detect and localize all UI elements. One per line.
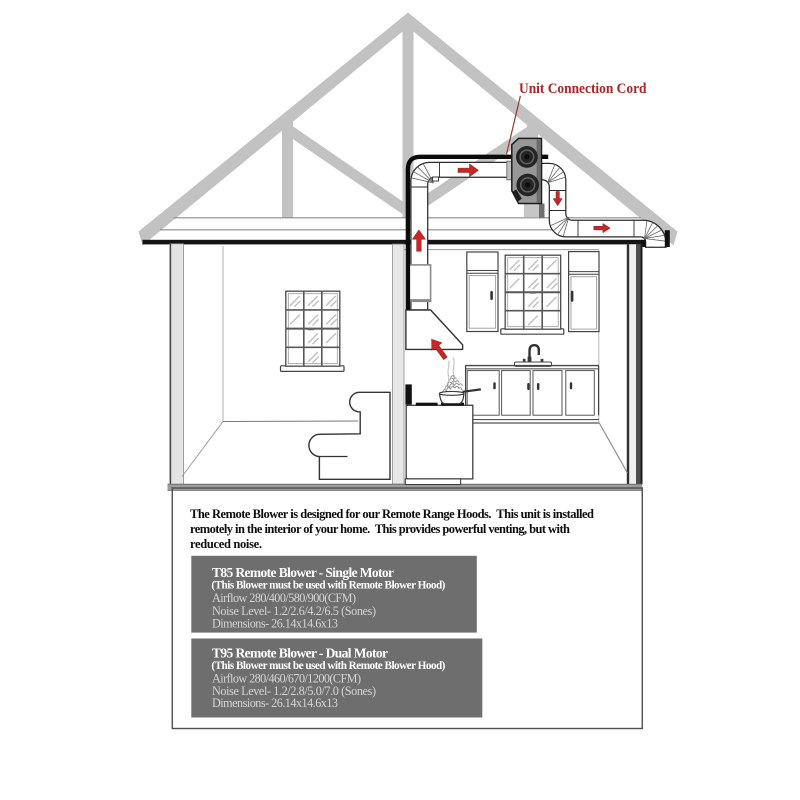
svg-text:Unit Connection Cord: Unit Connection Cord (519, 81, 647, 97)
svg-text:(This Blower must be used with: (This Blower must be used with Remote Bl… (211, 580, 445, 592)
svg-text:Airflow 280/400/580/900(CFM): Airflow 280/400/580/900(CFM) (212, 591, 356, 605)
svg-text:reduced noise.: reduced noise. (190, 537, 262, 551)
svg-text:(This Blower must be used with: (This Blower must be used with Remote Bl… (211, 660, 445, 672)
svg-text:T95 Remote Blower - Dual Motor: T95 Remote Blower - Dual Motor (212, 646, 388, 661)
svg-text:The Remote Blower is designed: The Remote Blower is designed for our Re… (190, 507, 594, 521)
svg-text:remotely in the interior of yo: remotely in the interior of your home. T… (190, 522, 570, 536)
svg-text:Dimensions- 26.14x14.6x13: Dimensions- 26.14x14.6x13 (212, 696, 338, 710)
svg-text:T85 Remote Blower - Single Mot: T85 Remote Blower - Single Motor (212, 565, 394, 580)
svg-text:Dimensions- 26.14x14.6x13: Dimensions- 26.14x14.6x13 (212, 616, 338, 630)
